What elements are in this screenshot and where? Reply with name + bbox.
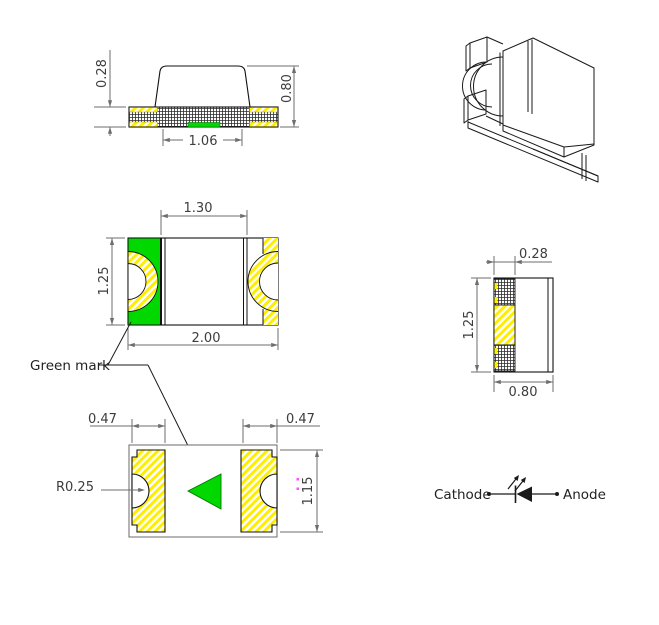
dim-side-bottom-width: 1.06 [163,129,242,149]
cathode-terminal-dot [487,492,491,496]
drawing-canvas: 0.28 0.80 1.06 [0,0,659,625]
led-datasheet-drawing: 0.28 0.80 1.06 [0,0,659,625]
cathode-label: Cathode [434,487,491,503]
side-view: 0.28 0.80 1.06 [94,50,299,149]
top-view: 1.30 1.25 2.00 Green mark [30,201,308,477]
side-green-mark [188,123,220,128]
dim-top-inner-width-text: 1.30 [184,201,213,216]
led-diode-icon [508,475,532,503]
dim-end-body-width: 0.80 [494,375,553,400]
dim-bottom-pad-right: 0.47 [243,412,320,443]
end-view: 0.28 1.25 0.80 [462,247,553,400]
dim-end-body-width-text: 0.80 [509,385,538,400]
dim-bottom-pad-height: 1.15 [280,450,323,532]
dim-bottom-notch-radius-text: R0.25 [56,480,94,495]
dim-top-body-height: 1.25 [97,238,125,325]
polarity-symbol: Cathode Anode [434,475,606,503]
dim-side-total-height-text: 0.80 [280,74,295,103]
green-mark-label: Green mark [30,358,110,374]
dim-end-body-height-text: 1.25 [462,311,477,340]
dim-side-terminal-height-text: 0.28 [95,59,110,88]
dim-bottom-pad-left: 0.47 [88,412,165,443]
end-terminal-middle [494,305,515,345]
dim-top-inner-width: 1.30 [161,201,247,235]
bottom-view: 0.47 0.47 R0.25 1.15 [56,412,323,537]
dim-end-terminal-thickness-text: 0.28 [519,247,548,262]
dim-side-bottom-width-text: 1.06 [189,134,218,149]
anode-label: Anode [563,487,606,503]
dim-bottom-pad-height-text: 1.15 [301,477,316,506]
dim-top-body-width: 2.00 [128,328,278,350]
dim-bottom-pad-right-text: 0.47 [286,412,315,427]
dim-end-body-height: 1.25 [462,278,491,372]
dim-end-terminal-thickness: 0.28 [486,247,552,275]
dim-top-body-width-text: 2.00 [192,331,221,346]
isometric-view [462,37,598,182]
dim-side-terminal-height: 0.28 [94,50,126,136]
anode-terminal-dot [555,492,559,496]
lens-dome [155,66,250,107]
dim-top-body-height-text: 1.25 [97,267,112,296]
dim-bottom-pad-left-text: 0.47 [88,412,117,427]
